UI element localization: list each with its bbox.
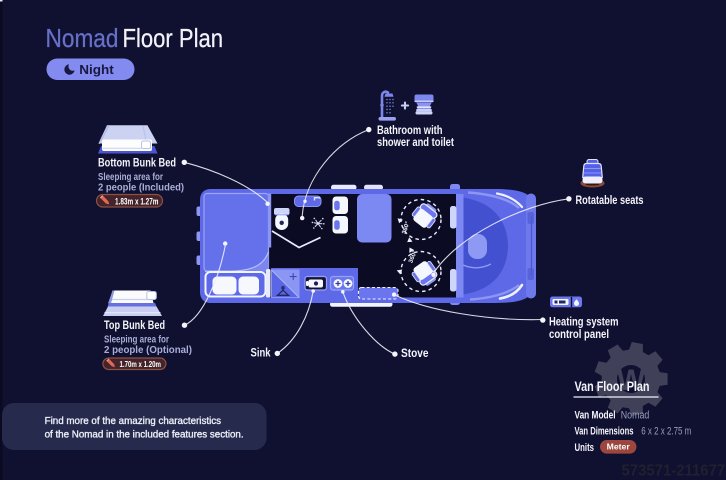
svg-text:Van Floor Plan: Van Floor Plan [575,379,650,394]
svg-text:Nomad: Nomad [46,23,119,53]
svg-text:1.83m x 1.27m: 1.83m x 1.27m [115,196,159,206]
svg-text:control panel: control panel [549,327,609,341]
svg-text:Van Model: Van Model [575,409,616,421]
svg-text:Nomad: Nomad [621,409,650,421]
svg-text:Bottom Bunk Bed: Bottom Bunk Bed [98,156,176,170]
svg-text:Sleeping area for: Sleeping area for [98,172,163,183]
svg-text:2 people (Included): 2 people (Included) [98,183,184,194]
svg-text:Rotatable seats: Rotatable seats [576,193,644,207]
svg-text:shower and toilet: shower and toilet [377,135,454,149]
svg-text:2 people (Optional): 2 people (Optional) [104,345,192,356]
svg-text:Units: Units [575,442,595,454]
svg-text:Stove: Stove [401,346,429,360]
svg-text:Floor Plan: Floor Plan [123,23,224,53]
svg-text:Night: Night [79,63,114,77]
svg-text:Meter: Meter [607,443,631,452]
svg-text:6 x 2 x 2.75 m: 6 x 2 x 2.75 m [641,426,691,438]
svg-text:Van Dimensions: Van Dimensions [575,426,634,438]
svg-text:1.70m x 1.20m: 1.70m x 1.20m [120,359,162,369]
svg-text:Find more of the amazing chara: Find more of the amazing characteristics [45,416,222,427]
svg-text:Top Bunk Bed: Top Bunk Bed [104,318,165,332]
svg-text:573571-2116772: 573571-2116772 [622,463,726,480]
svg-text:Sink: Sink [251,346,271,360]
svg-text:of the Nomad in the included f: of the Nomad in the included features se… [45,430,244,441]
